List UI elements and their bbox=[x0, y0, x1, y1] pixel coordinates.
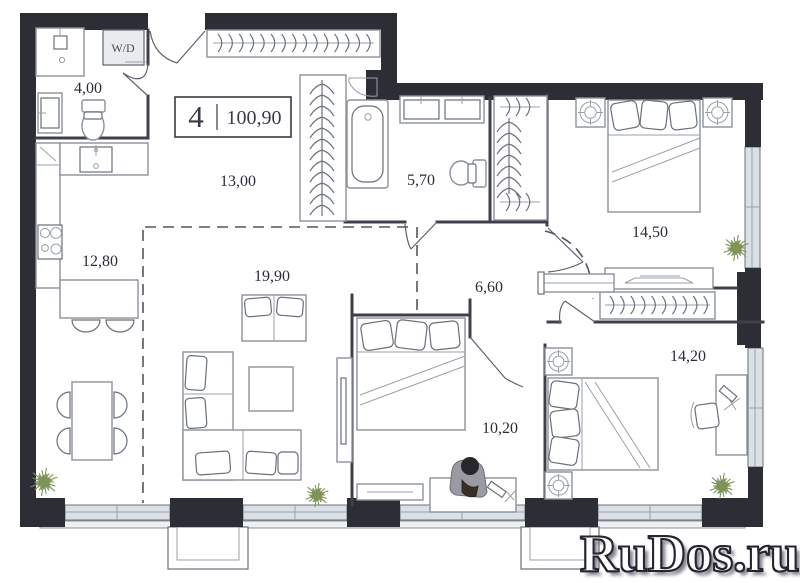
nightstand-left bbox=[576, 98, 605, 127]
dining-table bbox=[57, 382, 127, 460]
room-label-kitchen: 12,80 bbox=[82, 253, 118, 270]
shower-cabin bbox=[36, 28, 84, 76]
double-sink bbox=[400, 96, 484, 123]
toilet-main-bath bbox=[450, 160, 486, 187]
toilet-small-bath bbox=[82, 100, 105, 140]
tv-console-middle-bedroom bbox=[357, 484, 423, 500]
room-label-bedroom-middle: 10,20 bbox=[482, 420, 518, 437]
wardrobe-between-bedrooms bbox=[600, 292, 715, 319]
bed-top-bedroom bbox=[608, 100, 700, 212]
plant-right-bedroom bbox=[710, 473, 735, 499]
desk-chair bbox=[691, 402, 720, 429]
coffee-table bbox=[249, 367, 293, 411]
room-label-living: 19,90 bbox=[254, 268, 290, 285]
floor-plan-drawing: 4 100,90 W/D 4,00 13,00 12,80 19,90 5,70… bbox=[0, 0, 800, 583]
room-count: 4 bbox=[188, 99, 204, 134]
floor-plan: 4 100,90 W/D 4,00 13,00 12,80 19,90 5,70… bbox=[0, 0, 800, 583]
wardrobe-left-of-bath bbox=[300, 75, 346, 221]
rudos-watermark: RuDos.ru bbox=[580, 528, 800, 581]
room-label-bedroom-right: 14,20 bbox=[670, 348, 706, 365]
nightstand-right bbox=[703, 98, 732, 127]
balcony-left bbox=[168, 527, 248, 569]
kitchen-sink bbox=[80, 145, 112, 172]
room-label-hallway-inner: 6,60 bbox=[475, 279, 503, 296]
wd-label: W/D bbox=[111, 41, 135, 55]
washbasin-small-bath bbox=[38, 93, 62, 133]
room-label-bathroom-main: 5,70 bbox=[407, 172, 435, 189]
person-at-desk bbox=[450, 457, 487, 497]
wardrobe-top bbox=[207, 30, 380, 57]
kitchen-island bbox=[60, 280, 138, 332]
desk-right-bedroom bbox=[716, 375, 747, 455]
title-box: 4 100,90 bbox=[175, 97, 291, 137]
dresser-tv-top-bedroom bbox=[605, 268, 713, 289]
room-label-bathroom-small: 4,00 bbox=[74, 80, 102, 97]
room-label-hallway-main: 13,00 bbox=[220, 173, 256, 190]
wardrobe-right-of-bath bbox=[494, 96, 547, 220]
room-label-bedroom-top: 14,50 bbox=[632, 224, 668, 241]
nightstand-right-bedroom-top bbox=[545, 348, 572, 375]
stove bbox=[38, 225, 62, 259]
bed-right-bedroom bbox=[548, 378, 658, 470]
total-area: 100,90 bbox=[227, 107, 282, 129]
tv-panel-living bbox=[337, 358, 352, 462]
bed-middle-bedroom bbox=[357, 318, 465, 430]
plant-living-2 bbox=[306, 483, 329, 507]
loveseat bbox=[242, 295, 306, 341]
nightstand-right-bedroom-bottom bbox=[545, 472, 572, 499]
hall-console bbox=[538, 272, 614, 294]
